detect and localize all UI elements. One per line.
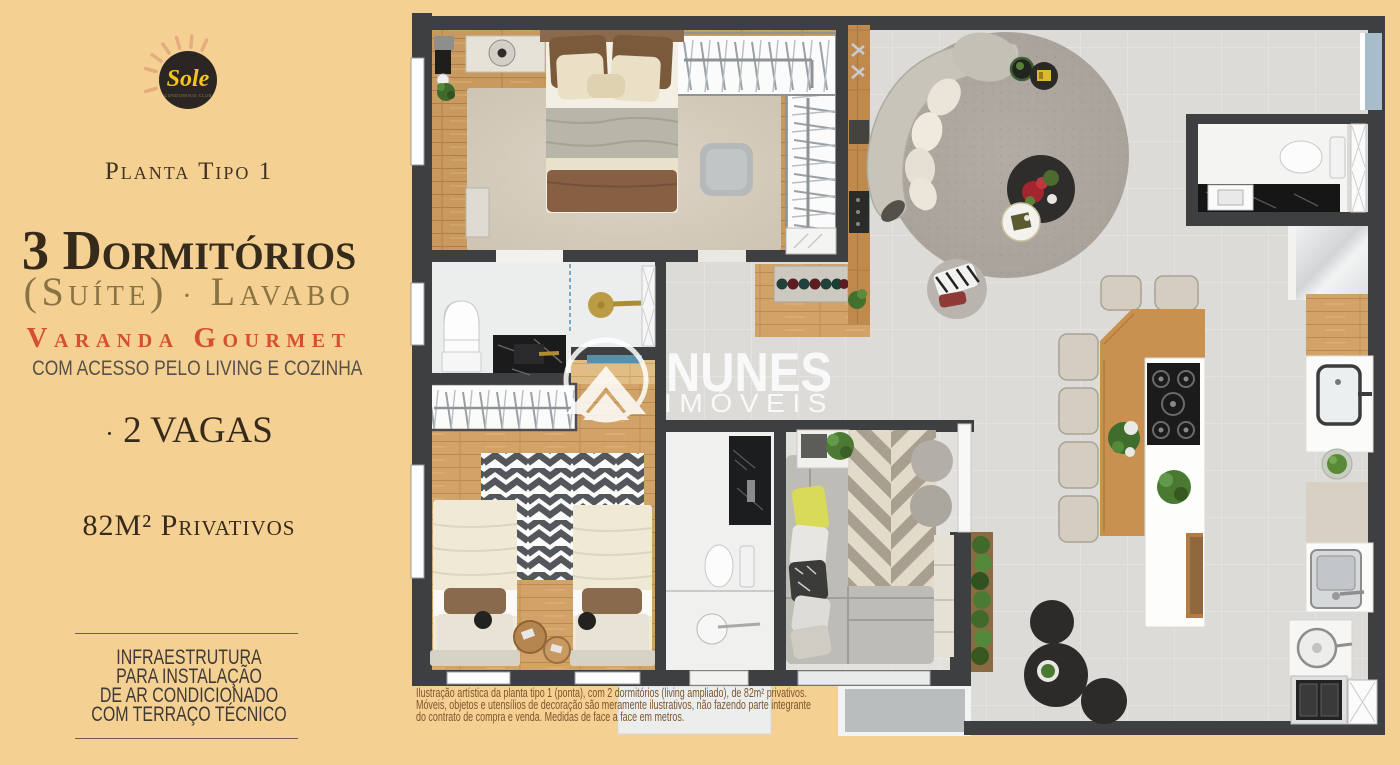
svg-text:IMÓVEIS: IMÓVEIS bbox=[664, 388, 834, 418]
